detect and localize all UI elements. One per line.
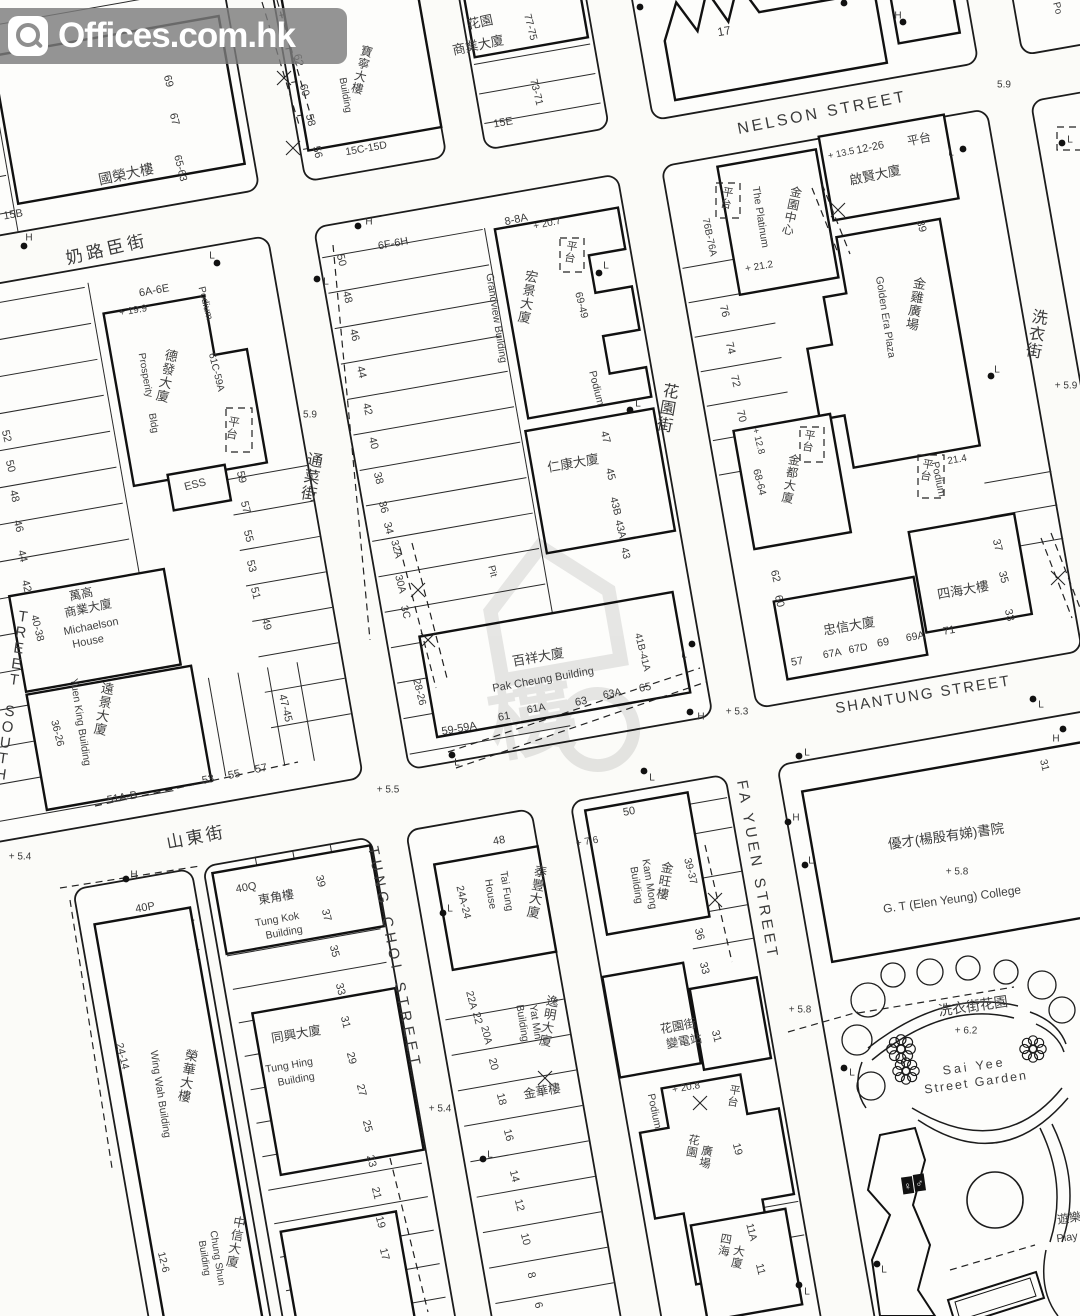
survey-marker-letter: L bbox=[808, 856, 814, 867]
survey-marker-dot bbox=[1030, 696, 1037, 703]
survey-marker-letter: H bbox=[697, 712, 704, 723]
survey-marker-dot bbox=[1059, 140, 1066, 147]
survey-marker-letter: H bbox=[130, 870, 137, 881]
survey-marker-letter: L bbox=[454, 758, 460, 769]
building-outline bbox=[690, 977, 771, 1070]
survey-marker-dot bbox=[796, 753, 803, 760]
survey-marker-dot bbox=[960, 146, 967, 153]
spot-height: 5.9 bbox=[997, 80, 1011, 91]
survey-marker-dot bbox=[841, 1065, 848, 1072]
lot-number: 55 bbox=[227, 768, 241, 782]
survey-marker-letter: L bbox=[635, 399, 641, 410]
lot-number: 50 bbox=[622, 805, 636, 819]
lot-number: 61 bbox=[497, 710, 511, 724]
survey-marker-dot bbox=[874, 1261, 881, 1268]
survey-marker-dot bbox=[1060, 726, 1067, 733]
survey-marker-letter: L bbox=[681, 650, 687, 661]
street-label: 花園街 bbox=[655, 382, 680, 436]
survey-marker-letter: L bbox=[804, 748, 810, 759]
survey-marker-letter: H bbox=[792, 813, 799, 824]
spot-height: + 5.5 bbox=[377, 785, 400, 796]
survey-marker-dot bbox=[988, 373, 995, 380]
survey-marker-letter: L bbox=[487, 1150, 493, 1161]
lot-number: 48 bbox=[492, 834, 506, 848]
survey-marker-dot bbox=[355, 223, 362, 230]
spot-height: + 5.8 bbox=[789, 1005, 812, 1016]
survey-marker-letter: L bbox=[1038, 700, 1044, 711]
survey-marker-dot bbox=[123, 876, 130, 883]
lot-number: 63 bbox=[574, 695, 588, 709]
spot-height: + 5.9 bbox=[1055, 381, 1078, 392]
building-outline bbox=[525, 409, 675, 554]
lot-number: 69 bbox=[876, 636, 890, 650]
survey-marker-letter: L bbox=[649, 773, 655, 784]
spot-height: + 6.2 bbox=[955, 1026, 978, 1037]
survey-marker-dot bbox=[900, 19, 907, 26]
survey-marker-letter: L bbox=[603, 261, 609, 272]
spot-height: + 5.3 bbox=[726, 707, 749, 718]
spot-height: + 5.4 bbox=[9, 852, 32, 863]
survey-marker-letter: L bbox=[849, 1068, 855, 1079]
lot-number: 65 bbox=[638, 681, 652, 695]
building-outline bbox=[717, 149, 838, 294]
survey-marker-dot bbox=[596, 270, 603, 277]
lot-number: 17 bbox=[716, 23, 732, 39]
survey-marker-dot bbox=[785, 819, 792, 826]
survey-marker-dot bbox=[21, 243, 28, 250]
survey-map-image: 樓♀♂NELSON STREETSHANTUNG STREETTUNG CHOI… bbox=[0, 0, 1080, 1316]
survey-marker-letter: L bbox=[881, 1265, 887, 1276]
survey-marker-dot bbox=[440, 910, 447, 917]
male-figure-icon: ♂ bbox=[915, 1178, 925, 1191]
magnifier-handle bbox=[34, 39, 43, 48]
logo-bar: Offices.com.hk bbox=[0, 8, 347, 64]
spot-height: 5.9 bbox=[303, 410, 317, 421]
survey-marker-dot bbox=[314, 276, 321, 283]
female-figure-icon: ♀ bbox=[903, 1180, 913, 1193]
spot-height: + 5.4 bbox=[429, 1104, 452, 1115]
survey-marker-letter: H bbox=[1052, 734, 1059, 745]
survey-marker-letter: L bbox=[1067, 135, 1073, 146]
survey-marker-letter: L bbox=[804, 1287, 810, 1298]
street-label: 山東街 bbox=[165, 822, 228, 852]
survey-marker-dot bbox=[641, 768, 648, 775]
survey-marker-dot bbox=[802, 862, 809, 869]
survey-marker-letter: L bbox=[209, 251, 215, 262]
survey-marker-dot bbox=[637, 4, 644, 11]
lot-number: 57 bbox=[790, 655, 804, 669]
spot-height: + 5.8 bbox=[946, 867, 969, 878]
survey-marker-letter: H bbox=[365, 217, 372, 228]
survey-marker-letter: L bbox=[323, 277, 329, 288]
survey-marker-letter: L bbox=[948, 148, 954, 159]
street-label: 洗衣街 bbox=[1024, 308, 1049, 362]
lot-number: 53 bbox=[201, 773, 215, 787]
lot-number: 71 bbox=[942, 624, 956, 638]
survey-marker-dot bbox=[627, 407, 634, 414]
survey-marker-dot bbox=[796, 1282, 803, 1289]
lot-number: 57 bbox=[254, 762, 268, 776]
survey-marker-letter: L bbox=[994, 365, 1000, 376]
survey-marker-dot bbox=[214, 260, 221, 267]
survey-marker-letter: H bbox=[25, 233, 32, 244]
map-viewport: 樓♀♂NELSON STREETSHANTUNG STREETTUNG CHOI… bbox=[0, 0, 1080, 1316]
survey-marker-letter: L bbox=[447, 904, 453, 915]
survey-marker-dot bbox=[687, 709, 694, 716]
survey-marker-dot bbox=[449, 752, 456, 759]
logo-text: Offices.com.hk bbox=[58, 16, 295, 56]
magnifier-icon bbox=[8, 16, 48, 56]
survey-marker-dot bbox=[480, 1156, 487, 1163]
survey-marker-dot bbox=[689, 641, 696, 648]
